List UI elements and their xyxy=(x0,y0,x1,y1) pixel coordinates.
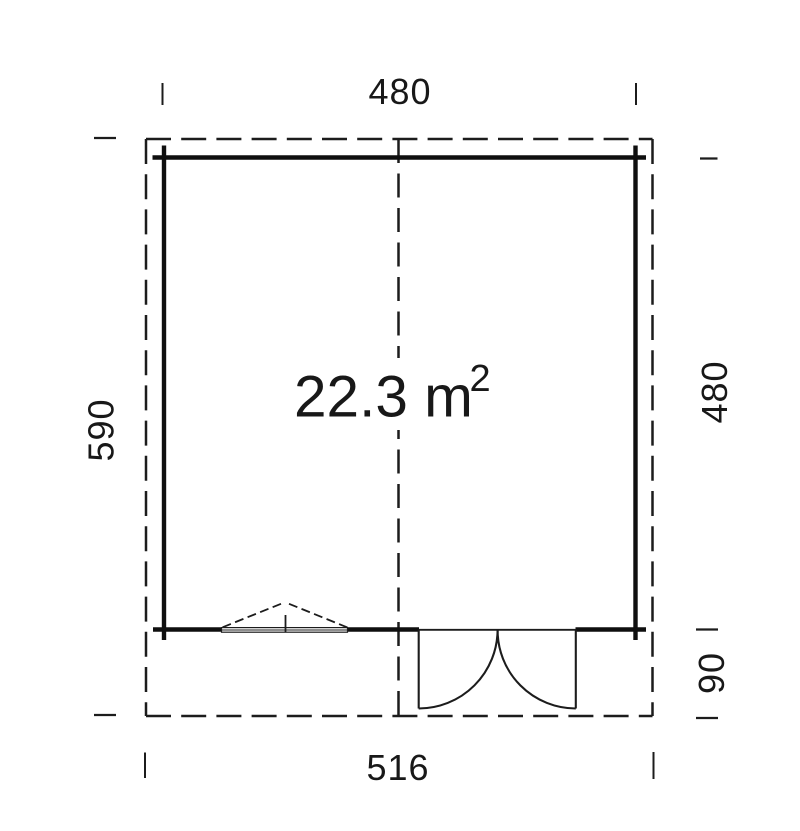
svg-text:90: 90 xyxy=(691,652,732,694)
svg-text:2: 2 xyxy=(470,358,491,400)
svg-text:22.3 m: 22.3 m xyxy=(294,365,473,430)
svg-text:590: 590 xyxy=(81,398,122,461)
svg-text:480: 480 xyxy=(368,71,431,112)
svg-text:480: 480 xyxy=(694,360,735,423)
svg-text:516: 516 xyxy=(366,747,429,788)
